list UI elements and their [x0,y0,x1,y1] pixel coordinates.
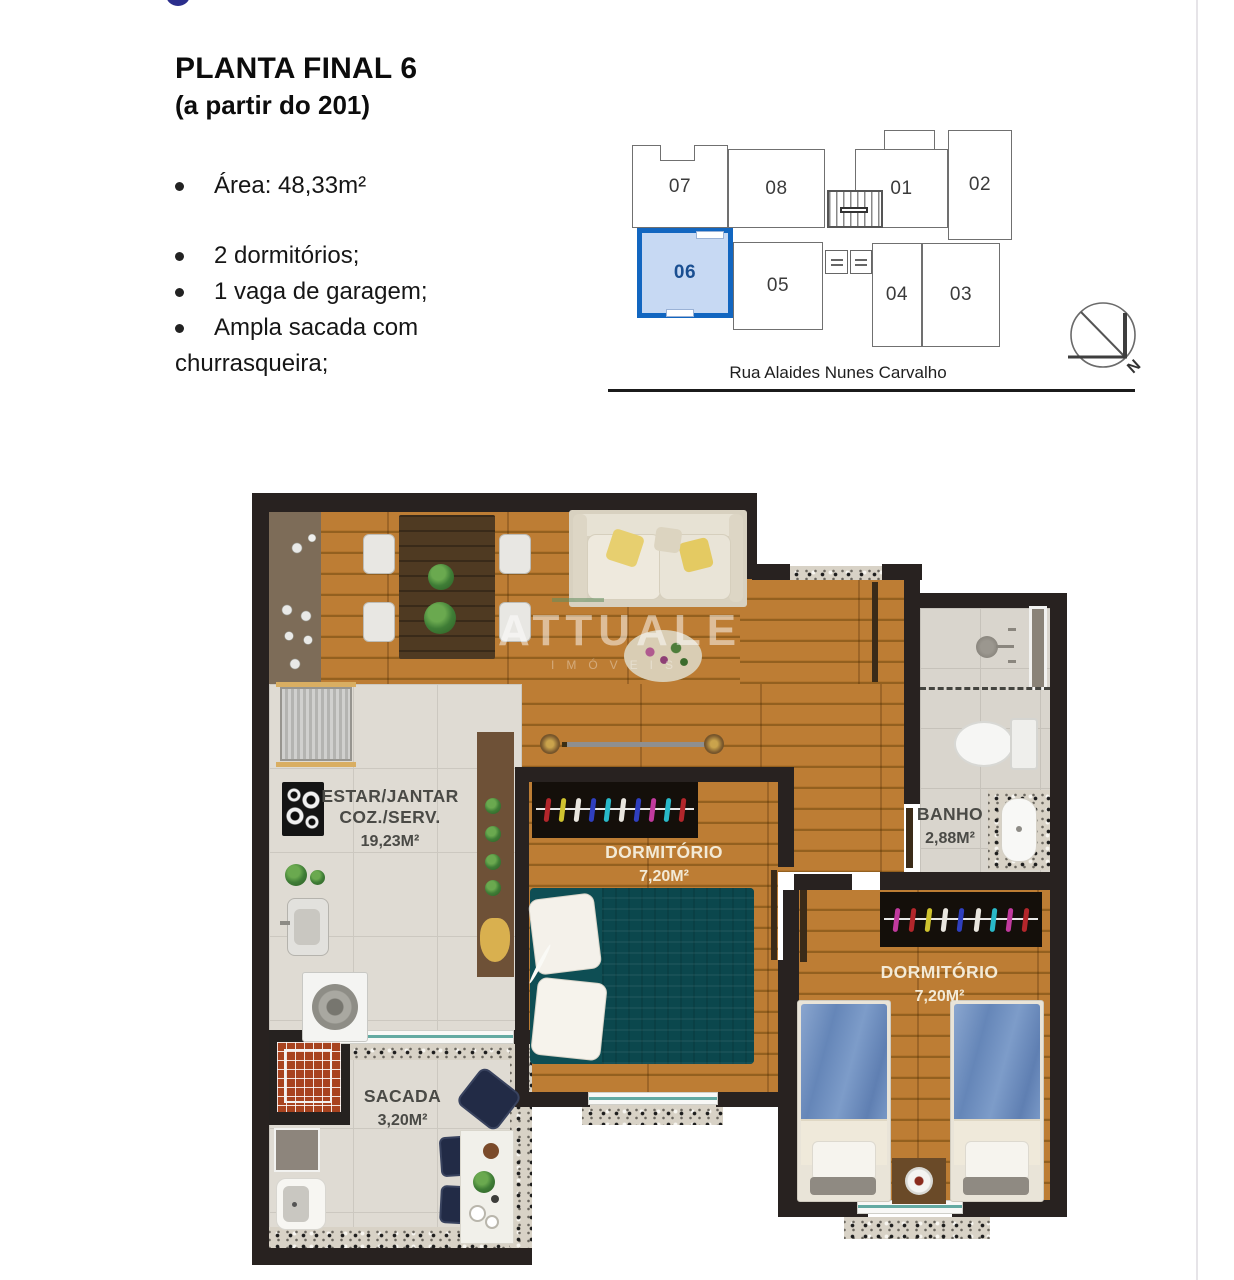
wall [515,1092,590,1107]
feature-balcony: Ampla sacada com churrasqueira; [175,310,480,382]
feature-garage: 1 vaga de garagem; [175,274,480,310]
toilet-tank [1010,718,1038,770]
key-plan: 07 08 01 02 06 05 04 03 Rua Alaides Nune… [608,125,1148,400]
wall [716,1092,792,1107]
beige-pillow [653,526,682,553]
kitchen-sink [287,898,329,956]
shower-arm [996,645,1014,648]
wall [778,960,799,1217]
page-title: PLANTA FINAL 6 [175,52,417,86]
entry-door [872,582,878,682]
unit-label: 07 [669,176,691,198]
bullet-icon [175,324,184,333]
clothes-hanger [649,798,657,822]
unit-label: 04 [886,284,908,306]
balcony-table [460,1130,514,1244]
sink-drain [292,1202,297,1207]
washing-machine [302,972,368,1042]
key-plan-unit-01-tab [884,130,935,149]
counter-edge [276,762,356,767]
toilet-bowl [954,721,1014,767]
balcony-granite-band-top [347,1044,510,1060]
lamp-icon [905,1167,933,1195]
room-area: 19,23M² [310,831,470,852]
wall [1050,593,1067,880]
feature-bedrooms: 2 dormitórios; [175,238,480,274]
unit-label: 08 [765,178,787,200]
room-area: 7,20M² [852,986,1027,1007]
fridge [280,687,352,761]
bedroom1-window-sill [582,1105,723,1125]
key-plan-unit-05: 05 [733,242,823,330]
plant-icon [285,864,307,886]
elevator-icon [850,250,872,274]
key-plan-notch [660,145,695,161]
sofa-armrest [573,514,587,602]
cup-decor [491,1195,499,1203]
shower-glass-partition [920,687,1050,690]
wall [794,874,852,890]
stairs-rail [840,207,868,213]
clothes-hanger [664,798,672,822]
console-bar [562,742,710,747]
clothes-hanger [908,907,916,931]
feature-area-text: Área: 48,33m² [214,172,366,199]
clothes-hanger [589,798,597,822]
clothes-hanger [619,798,627,822]
room-area: 3,20M² [330,1110,475,1131]
street-label: Rua Alaides Nunes Carvalho [628,363,1048,383]
north-compass-icon: N [1054,293,1164,388]
wardrobe-bedroom2 [880,892,1042,947]
clothes-hanger [892,907,900,931]
key-plan-unit-02: 02 [948,130,1012,240]
key-plan-unit-06-highlighted: 06 [637,228,733,318]
unit-label: 05 [767,275,789,297]
key-plan-unit-03: 03 [922,243,1000,347]
clothes-hanger [544,798,552,822]
clothes-hanger [973,907,981,931]
plant-icon [428,564,454,590]
dining-chair [363,602,395,642]
bowl-decor [483,1143,499,1159]
north-label: N [1124,357,1144,377]
room-label-bathroom: BANHO 2,88M² [904,804,996,849]
bed-duvet [602,888,754,1064]
wall [515,767,529,1107]
clothes-hanger [604,798,612,822]
room-name: DORMITÓRIO [580,842,748,863]
balcony-sink [276,1178,326,1230]
wall [778,767,794,867]
shower-head-icon [976,636,998,658]
double-bed-teal [530,888,754,1064]
plate-decor [485,1215,499,1229]
plant-icon [473,1171,495,1193]
cutting-board [480,918,510,962]
watermark-accent [552,598,604,602]
logo-fragment-icon [166,0,190,6]
wall [783,1200,868,1217]
room-name: COZ./SERV. [310,807,470,828]
watermark: ATTUALE IMÓVEIS [498,606,738,672]
page-subtitle: (a partir do 201) [175,90,370,121]
shower-valve [1008,660,1016,663]
wall [252,493,269,1265]
room-name: ESTAR/JANTAR [310,786,470,807]
grill-frame [284,1049,332,1103]
bullet-icon [175,288,184,297]
single-bed-blue [797,1000,891,1202]
wall [1050,877,1067,1217]
room-label-living: ESTAR/JANTAR COZ./SERV. 19,23M² [310,786,470,852]
wall [752,564,790,580]
wall [783,890,799,960]
room-label-balcony: SACADA 3,20M² [330,1086,475,1131]
page-right-border [1196,0,1198,1280]
kitchen-counter-dishes [269,512,321,684]
dining-chair [499,534,531,574]
room-name: DORMITÓRIO [852,962,1027,983]
washer-drum [312,984,358,1030]
bed-pillow [530,977,608,1062]
unit-label: 01 [890,178,912,200]
plant-icon [310,870,325,885]
bed-mattress [954,1004,1040,1132]
feature-garage-text: 1 vaga de garagem; [214,278,427,305]
plant-icon [485,880,501,896]
sofa-armrest [729,514,743,602]
bed-foot-pillow [963,1177,1029,1195]
stairs-icon [827,190,883,228]
room-area: 2,88M² [904,828,996,849]
bed-foot-pillow [810,1177,876,1195]
bedroom2-door [800,890,807,962]
bed-mattress [801,1004,887,1132]
room-name: BANHO [904,804,996,825]
shower-valve [1008,628,1016,631]
clothes-hanger [634,798,642,822]
sink-tap [280,921,290,925]
bed-pillow [812,1141,876,1181]
sofa [569,510,747,607]
clothes-hanger [679,798,687,822]
street-line [608,389,1135,392]
unit-label: 06 [674,262,696,284]
room-name: SACADA [330,1086,475,1107]
dining-chair [363,534,395,574]
room-label-bedroom1: DORMITÓRIO 7,20M² [580,842,748,887]
feature-list: Área: 48,33m² 2 dormitórios; 1 vaga de g… [175,168,480,382]
wardrobe-bedroom1 [532,782,698,838]
wall [880,872,1067,890]
bedroom2-window-sill [844,1217,990,1239]
balcony-counter [274,1128,320,1172]
bedroom1-door [771,870,777,960]
key-plan-unit-08: 08 [728,149,825,228]
room-area: 7,20M² [580,866,748,887]
watermark-brand: ATTUALE [498,606,738,656]
bathroom-window [1029,606,1047,690]
feature-balcony-text: Ampla sacada com churrasqueira; [175,314,418,377]
bullet-icon [175,252,184,261]
elevator-icon [825,250,848,274]
wall [515,767,792,782]
plant-icon [485,798,501,814]
single-bed-blue [950,1000,1044,1202]
entry-granite-sill [788,566,884,580]
plant-icon [424,602,456,634]
floor-wood-entry [740,579,904,684]
clothes-hanger [559,798,567,822]
watermark-sub: IMÓVEIS [498,658,738,672]
key-plan-unit-04: 04 [872,243,922,347]
bedroom1-window [588,1092,718,1105]
plant-icon [485,826,501,842]
unit-label: 03 [950,284,972,306]
plant-icon [485,854,501,870]
key-plan-notch [696,231,724,239]
rosette-decor [704,734,724,754]
nightstand [892,1158,946,1204]
bullet-icon [175,182,184,191]
unit-label: 02 [969,174,991,196]
vanity-tap [1016,826,1022,832]
floor-plan: ESTAR/JANTAR COZ./SERV. 19,23M² DORMITÓR… [252,490,1067,1268]
rosette-decor [540,734,560,754]
plate-decor [469,1205,486,1222]
bed-pillow [965,1141,1029,1181]
key-plan-notch [666,309,694,317]
feature-area: Área: 48,33m² [175,168,480,204]
sink-basin [294,909,320,945]
feature-bedrooms-text: 2 dormitórios; [214,242,359,269]
clothes-hanger [574,798,582,822]
bathroom-vanity [988,790,1050,870]
page: PLANTA FINAL 6 (a partir do 201) Área: 4… [0,0,1234,1280]
room-label-bedroom2: DORMITÓRIO 7,20M² [852,962,1027,1007]
wall [252,1248,532,1265]
